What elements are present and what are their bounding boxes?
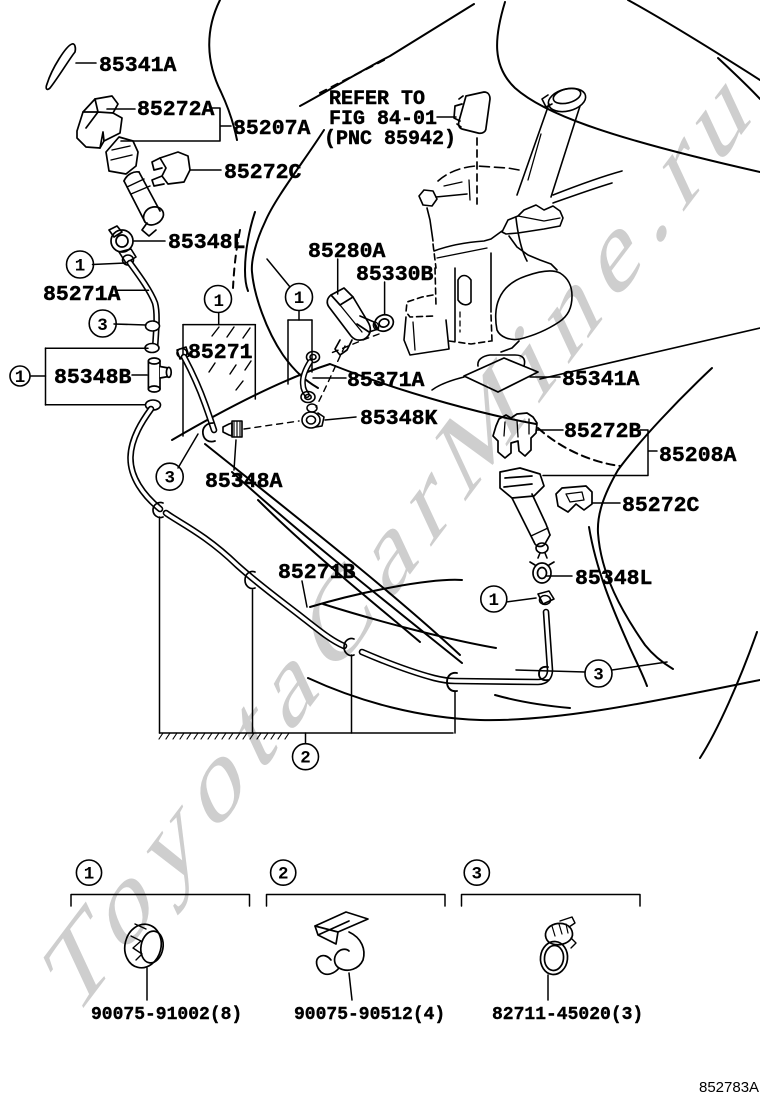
svg-text:85341A: 85341A xyxy=(99,54,177,78)
svg-text:85341A: 85341A xyxy=(562,368,640,392)
svg-text:85330B: 85330B xyxy=(356,263,434,287)
svg-text:1: 1 xyxy=(213,292,224,312)
svg-text:85371A: 85371A xyxy=(347,369,425,393)
svg-text:85348L: 85348L xyxy=(168,231,245,255)
svg-text:85271A: 85271A xyxy=(43,283,121,307)
svg-text:85207A: 85207A xyxy=(233,117,311,141)
svg-text:85272C: 85272C xyxy=(622,494,700,518)
svg-text:85348L: 85348L xyxy=(575,567,652,591)
svg-text:(PNC 85942): (PNC 85942) xyxy=(324,128,456,151)
svg-text:1: 1 xyxy=(294,289,305,309)
svg-text:90075-90512(4): 90075-90512(4) xyxy=(294,1005,445,1025)
svg-text:1: 1 xyxy=(75,257,86,277)
svg-text:85280A: 85280A xyxy=(308,240,386,264)
svg-text:2: 2 xyxy=(278,865,289,885)
svg-text:85272B: 85272B xyxy=(564,420,642,444)
svg-text:85271: 85271 xyxy=(188,341,253,365)
svg-text:852783A: 852783A xyxy=(699,1079,759,1096)
svg-text:90075-91002(8): 90075-91002(8) xyxy=(91,1005,242,1025)
svg-text:3: 3 xyxy=(164,469,175,489)
svg-text:3: 3 xyxy=(97,316,108,336)
svg-text:1: 1 xyxy=(15,368,26,388)
svg-text:3: 3 xyxy=(472,865,483,885)
svg-text:85348B: 85348B xyxy=(54,366,132,390)
svg-text:85271B: 85271B xyxy=(278,561,356,585)
svg-text:2: 2 xyxy=(300,749,311,769)
svg-text:85348A: 85348A xyxy=(205,470,283,494)
svg-text:85348K: 85348K xyxy=(360,407,438,431)
svg-text:1: 1 xyxy=(84,865,95,885)
svg-text:85272C: 85272C xyxy=(224,161,302,185)
svg-text:85272A: 85272A xyxy=(137,98,215,122)
svg-text:82711-45020(3): 82711-45020(3) xyxy=(492,1005,643,1025)
svg-text:1: 1 xyxy=(489,591,500,611)
svg-text:85208A: 85208A xyxy=(659,444,737,468)
svg-text:3: 3 xyxy=(593,666,604,686)
